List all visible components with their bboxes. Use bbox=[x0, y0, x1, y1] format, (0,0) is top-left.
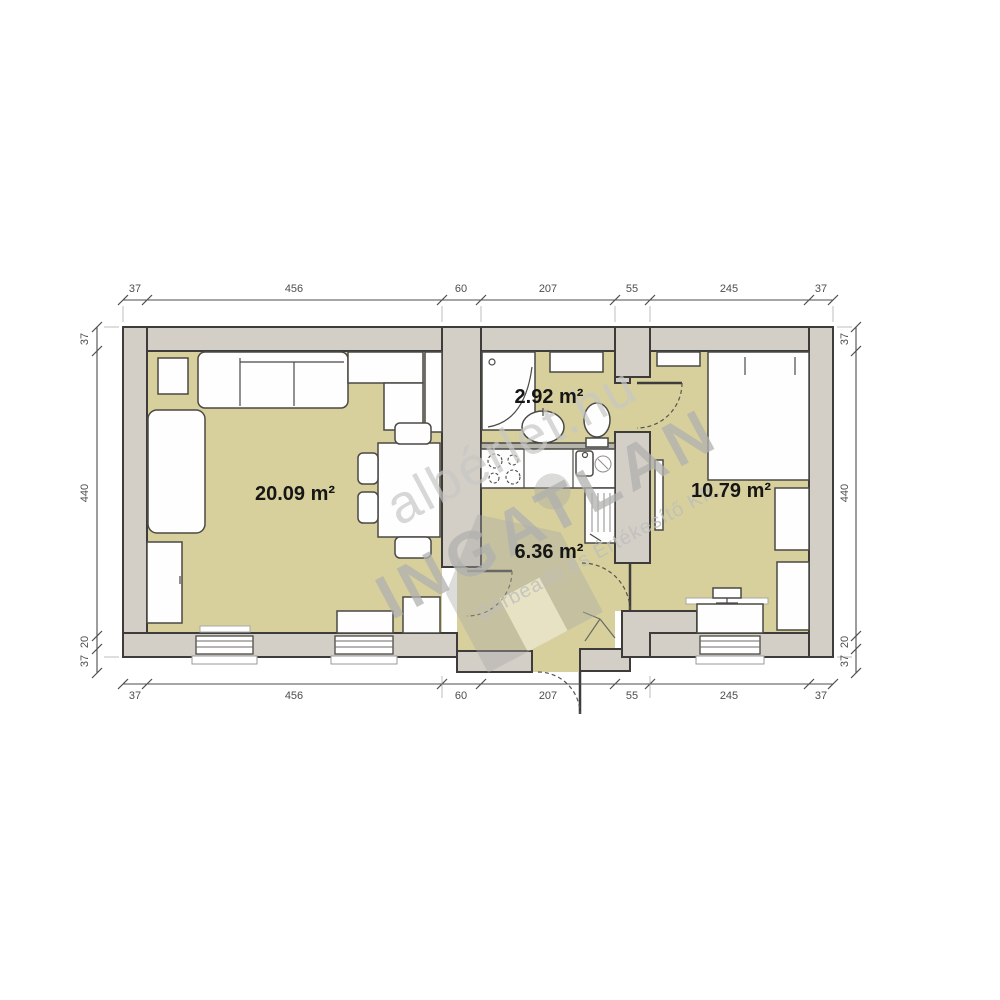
bedroom-shelf-top bbox=[657, 352, 700, 366]
wall-bottom-living bbox=[123, 633, 457, 657]
bathroom-area-label: 2.92 m² bbox=[515, 386, 584, 408]
dimension-right: 37 440 20 37 bbox=[837, 322, 861, 678]
dim-left-37a: 37 bbox=[79, 333, 91, 345]
chair-left-2 bbox=[358, 492, 378, 523]
living-room-area-label: 20.09 m² bbox=[255, 483, 335, 505]
window-sill-3 bbox=[696, 656, 764, 664]
dim-right-37b: 37 bbox=[839, 655, 851, 667]
dim-left-20: 20 bbox=[79, 636, 91, 648]
dim-left-37b: 37 bbox=[79, 655, 91, 667]
wall-right bbox=[809, 327, 833, 657]
chair-left-1 bbox=[358, 453, 378, 484]
chair-top bbox=[395, 423, 431, 444]
floor-plan-drawing: 37 456 60 207 55 245 37 37 456 60 207 55… bbox=[0, 0, 1000, 1000]
cabinet-top-right bbox=[348, 352, 423, 383]
window-bedroom bbox=[700, 636, 760, 654]
side-table bbox=[158, 358, 188, 394]
radiator-living-1 bbox=[200, 626, 250, 632]
wardrobe-right-2 bbox=[777, 562, 809, 630]
bed-single bbox=[148, 410, 205, 533]
dim-bottom-456: 456 bbox=[285, 690, 303, 702]
window-sill-2 bbox=[331, 656, 397, 664]
dim-bottom-37a: 37 bbox=[129, 690, 141, 702]
dim-top-207: 207 bbox=[539, 283, 557, 295]
wardrobe-left bbox=[147, 542, 182, 623]
window-sill-1 bbox=[192, 656, 257, 664]
bedroom-area-label: 10.79 m² bbox=[691, 480, 771, 502]
entrance-floor bbox=[532, 651, 580, 672]
dim-top-456: 456 bbox=[285, 283, 303, 295]
dim-bottom-55: 55 bbox=[626, 690, 638, 702]
dim-bottom-60: 60 bbox=[455, 690, 467, 702]
dimension-top: 37 456 60 207 55 245 37 bbox=[118, 283, 838, 322]
wardrobe-right-1 bbox=[775, 488, 809, 550]
sofa bbox=[198, 352, 348, 408]
window-living-2 bbox=[335, 636, 393, 654]
dim-bottom-207: 207 bbox=[539, 690, 557, 702]
hall-area-label: 6.36 m² bbox=[515, 541, 584, 563]
dimension-bottom: 37 456 60 207 55 245 37 bbox=[118, 676, 838, 702]
shelf-right bbox=[425, 352, 442, 432]
desk bbox=[697, 604, 763, 633]
dim-left-440: 440 bbox=[79, 484, 91, 502]
dim-top-37a: 37 bbox=[129, 283, 141, 295]
dim-right-37a: 37 bbox=[839, 333, 851, 345]
bedroom-door-nook-floor bbox=[615, 563, 650, 611]
wall-left bbox=[123, 327, 147, 657]
dim-top-245: 245 bbox=[720, 283, 738, 295]
dim-top-60: 60 bbox=[455, 283, 467, 295]
dim-top-37b: 37 bbox=[815, 283, 827, 295]
monitor-icon bbox=[713, 588, 741, 598]
dim-right-20: 20 bbox=[839, 636, 851, 648]
floor-plan-page: 37 456 60 207 55 245 37 37 456 60 207 55… bbox=[0, 0, 1000, 1000]
window-living-1 bbox=[196, 636, 253, 654]
double-bed bbox=[708, 352, 809, 480]
dim-right-440: 440 bbox=[839, 484, 851, 502]
dim-bottom-245: 245 bbox=[720, 690, 738, 702]
cabinet-bottom-1 bbox=[337, 611, 393, 633]
dim-top-55: 55 bbox=[626, 283, 638, 295]
dim-bottom-37b: 37 bbox=[815, 690, 827, 702]
dimension-left: 37 440 20 37 bbox=[79, 322, 119, 678]
